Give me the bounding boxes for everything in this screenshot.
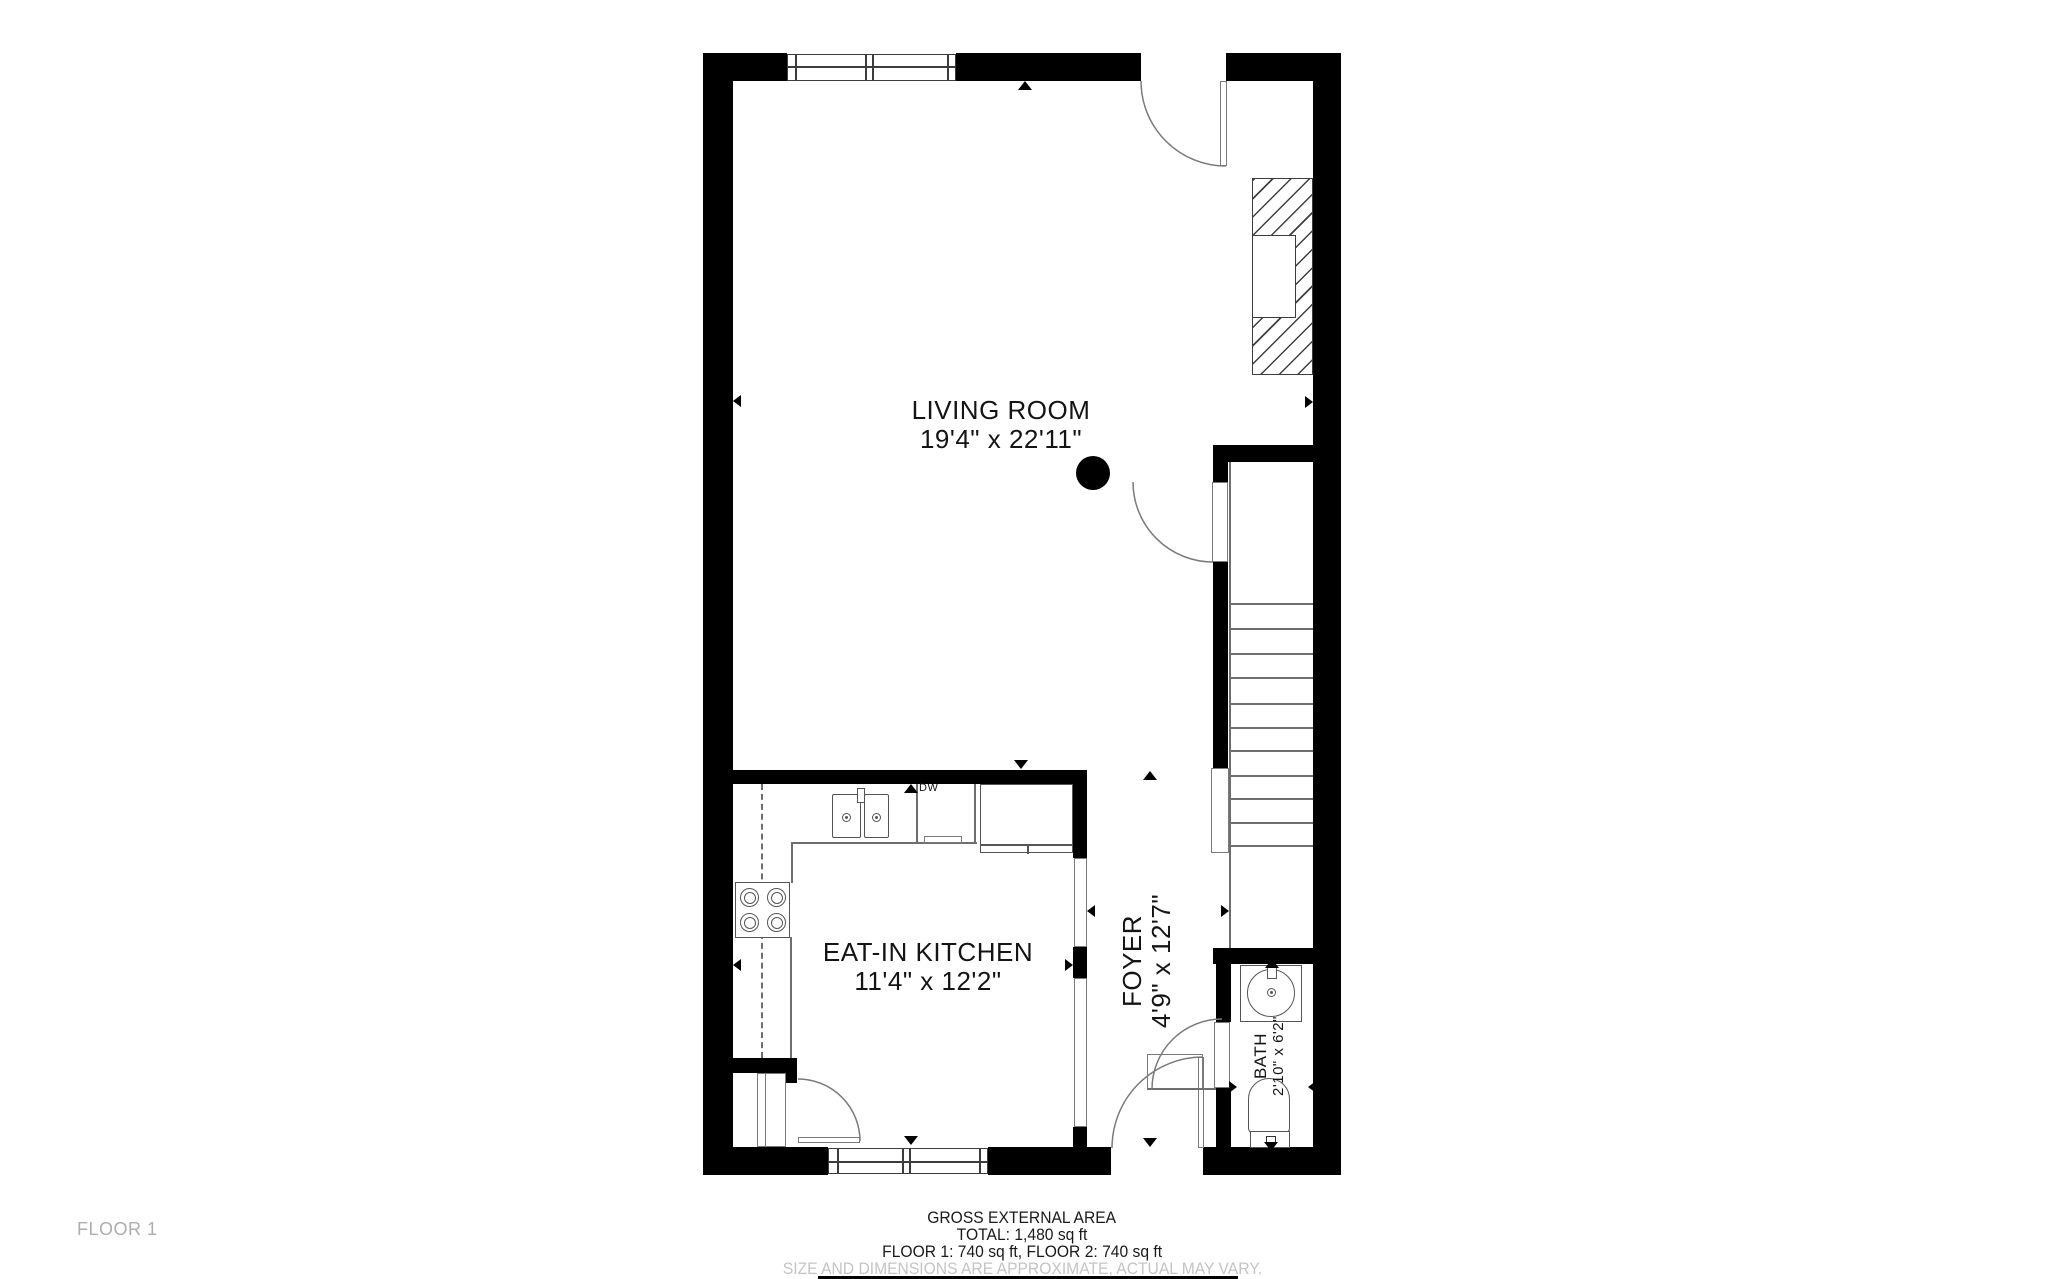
foyer-dims: 4'9" x 12'7"	[1147, 894, 1176, 1028]
wall-bath-top	[1213, 948, 1313, 964]
floor-label: FLOOR 1	[77, 1219, 158, 1240]
wall-left	[703, 53, 733, 1175]
stair-door-arc	[1133, 482, 1213, 562]
kitchen-label: EAT-IN KITCHEN 11'4" x 12'2"	[787, 938, 1069, 996]
stove	[735, 882, 790, 938]
kitchen-side-door-arc	[798, 1079, 860, 1141]
foyer-name: FOYER	[1118, 894, 1147, 1028]
stair-tread	[1230, 677, 1313, 679]
wall-closet-stub	[728, 1058, 797, 1073]
kitchen-foyer-door-leaf	[1074, 978, 1087, 1127]
entry-step-outline	[1147, 1054, 1203, 1090]
stair-tread	[1230, 653, 1313, 655]
stair-tread	[1230, 775, 1313, 777]
stair-tread	[1230, 798, 1313, 800]
living-room-name: LIVING ROOM	[860, 396, 1142, 425]
marker-foyer-bottom	[1143, 1138, 1157, 1147]
marker-living-top	[1018, 81, 1032, 90]
stair-tread	[1230, 603, 1313, 605]
dishwasher-right-line	[974, 784, 976, 843]
wall-bottom-b	[988, 1147, 1111, 1175]
marker-bath-bottom	[1264, 1142, 1278, 1151]
bath-door-leaf	[1214, 1022, 1230, 1088]
marker-foyer-right	[1221, 905, 1229, 917]
gross-area-title: GROSS EXTERNAL AREA	[722, 1209, 1322, 1226]
refrigerator	[980, 784, 1073, 853]
stair-edge-line	[1229, 462, 1231, 948]
foyer-label: FOYER 4'9" x 12'7"	[1118, 894, 1176, 1028]
wall-bath-left-b	[1216, 1088, 1231, 1147]
gross-area-floors: FLOOR 1: 740 sq ft, FLOOR 2: 740 sq ft	[722, 1243, 1322, 1260]
stair-under-panel	[1211, 768, 1229, 853]
window-top	[787, 54, 956, 81]
dishwasher-label: DW	[919, 782, 938, 794]
stair-tread	[1230, 822, 1313, 824]
stair-tread	[1230, 845, 1313, 847]
bath-dims: 2'10" x 6'2"	[1270, 1016, 1288, 1096]
floorplan-page: DW LIVING ROOM 19'4" x 22'11" EAT-IN K	[0, 0, 2048, 1279]
marker-kitchen-top	[904, 784, 918, 793]
wall-right	[1313, 53, 1341, 1175]
bath-door-swing-line	[1148, 1088, 1216, 1090]
stair-door-leaf	[1212, 482, 1228, 562]
door-swing-arcs	[0, 0, 2048, 1279]
gross-area-total: TOTAL: 1,480 sq ft	[722, 1226, 1322, 1243]
bath-name: BATH	[1252, 1016, 1270, 1096]
marker-living-right	[1305, 396, 1313, 408]
wall-stair-side-b	[1213, 562, 1228, 768]
marker-kitchen-left	[733, 959, 741, 971]
marker-foyer-left	[1087, 905, 1095, 917]
stair-tread	[1230, 703, 1313, 705]
stair-tread	[1230, 750, 1313, 752]
marker-kitchen-bottom	[904, 1136, 918, 1145]
front-door-arc	[1141, 81, 1226, 166]
kitchen-faucet	[857, 788, 865, 803]
front-door-leaf	[1220, 81, 1227, 166]
window-kitchen	[828, 1148, 988, 1174]
living-room-label: LIVING ROOM 19'4" x 22'11"	[860, 396, 1142, 454]
marker-living-bottom	[1014, 760, 1028, 769]
living-room-dims: 19'4" x 22'11"	[860, 425, 1142, 454]
marker-bath-right	[1308, 1081, 1316, 1093]
closet-door-leaf	[757, 1073, 786, 1147]
stair-tread	[1230, 727, 1313, 729]
stair-tread	[1230, 628, 1313, 630]
wall-bath-left-a	[1216, 964, 1231, 1022]
fireplace-firebox	[1252, 235, 1296, 318]
wall-top-a	[703, 53, 787, 81]
bath-label: BATH 2'10" x 6'2"	[1252, 1016, 1288, 1096]
wall-bottom-a	[703, 1147, 828, 1175]
wall-living-kitchen-divider	[703, 770, 1087, 784]
marker-foyer-top	[1143, 771, 1157, 780]
bath-sink-drain	[1267, 988, 1276, 997]
kitchen-sink-drain-left	[842, 813, 851, 822]
counter-edge-vertical-a	[791, 842, 793, 883]
marker-bath-top	[1265, 959, 1279, 968]
disclaimer: SIZE AND DIMENSIONS ARE APPROXIMATE, ACT…	[722, 1260, 1322, 1277]
kitchen-name: EAT-IN KITCHEN	[787, 938, 1069, 967]
wall-bottom-c	[1203, 1147, 1341, 1175]
wall-stair-top	[1213, 445, 1313, 462]
kitchen-dims: 11'4" x 12'2"	[787, 967, 1069, 996]
wall-kitchen-foyer-c	[1073, 1127, 1087, 1147]
column-dot	[1076, 456, 1110, 490]
marker-bath-left	[1229, 1081, 1237, 1093]
wall-stair-side-a	[1213, 462, 1228, 482]
dishwasher-handle	[924, 836, 962, 843]
kitchen-side-door-leaf	[798, 1137, 860, 1143]
bath-faucet	[1267, 967, 1277, 979]
marker-living-left	[733, 395, 741, 407]
wall-kitchen-foyer-b	[1073, 947, 1087, 978]
kitchen-sink-drain-right	[872, 813, 881, 822]
wall-top-b	[956, 53, 1141, 81]
kitchen-foyer-opening-a	[1074, 858, 1087, 947]
wall-kitchen-foyer-a	[1073, 784, 1087, 858]
